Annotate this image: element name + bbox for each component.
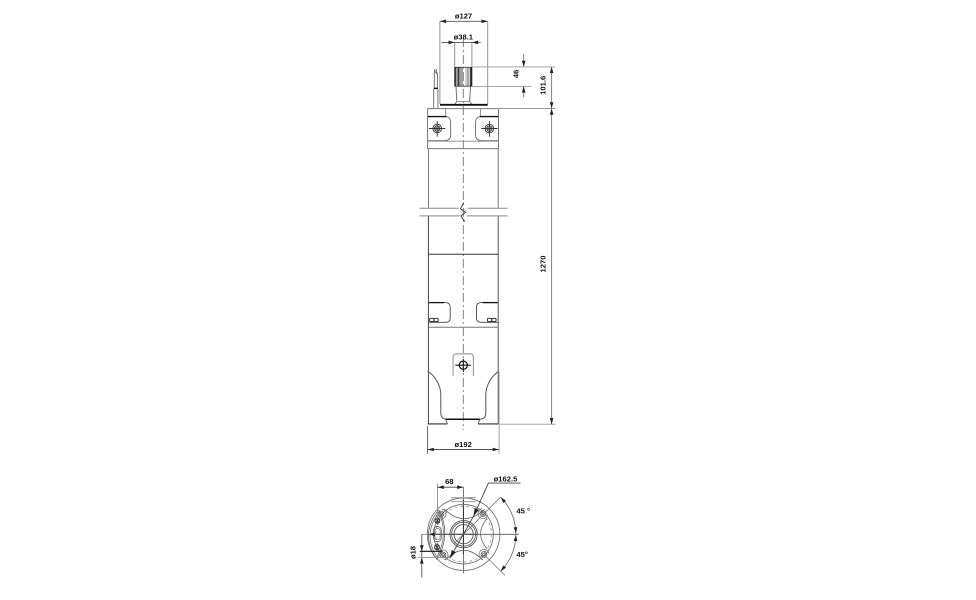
svg-text:1270: 1270 (538, 256, 547, 273)
svg-text:ø127: ø127 (455, 11, 472, 20)
svg-text:46: 46 (511, 70, 520, 78)
svg-text:68: 68 (445, 477, 453, 486)
svg-text:45 °: 45 ° (516, 506, 530, 515)
svg-text:ø192: ø192 (455, 440, 472, 449)
svg-text:45°: 45° (516, 550, 527, 559)
svg-text:ø38.1: ø38.1 (454, 32, 474, 41)
svg-text:ø18: ø18 (409, 546, 418, 559)
svg-text:ø162.5: ø162.5 (494, 474, 518, 483)
svg-text:101.6: 101.6 (538, 76, 547, 95)
